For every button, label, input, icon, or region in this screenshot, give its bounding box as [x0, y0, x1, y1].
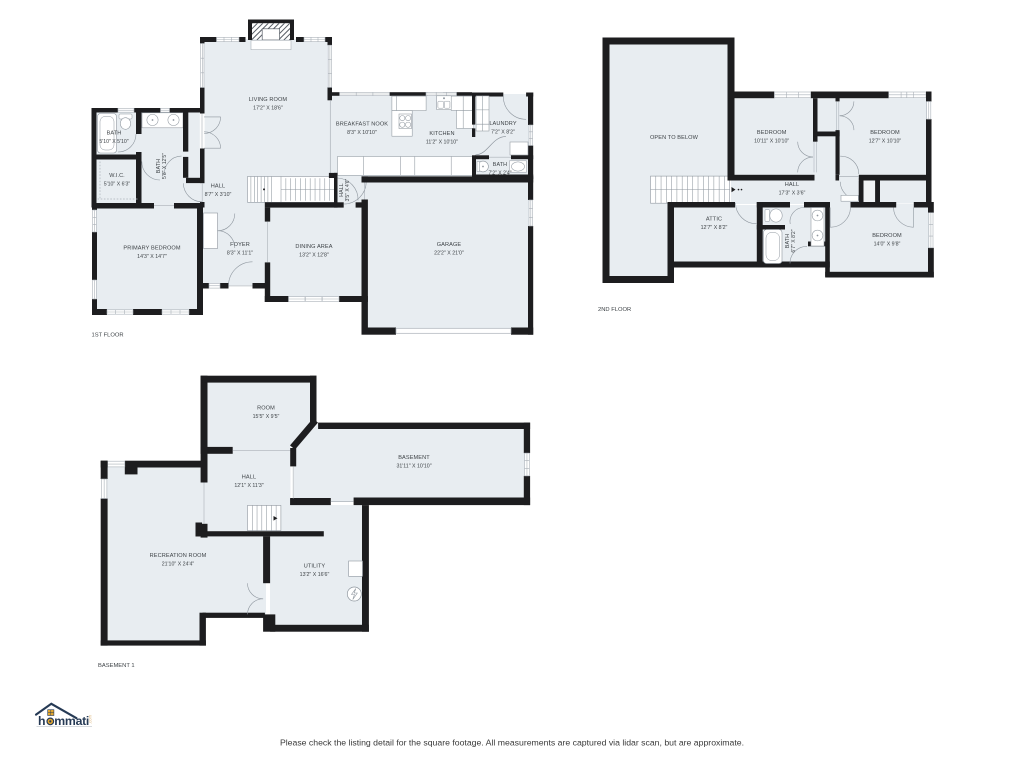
svg-text:14'3" X 14'7": 14'3" X 14'7"	[137, 254, 167, 260]
svg-text:.com: .com	[88, 714, 93, 724]
svg-text:ROOM: ROOM	[257, 406, 275, 412]
svg-text:2ND FLOOR: 2ND FLOOR	[598, 307, 631, 313]
svg-text:mmati: mmati	[54, 714, 89, 728]
svg-text:BEDROOM: BEDROOM	[757, 130, 787, 136]
svg-text:7'2" X 8'2": 7'2" X 8'2"	[491, 129, 515, 135]
svg-text:BATH: BATH	[493, 162, 507, 168]
svg-text:17'3" X 3'6": 17'3" X 3'6"	[779, 190, 806, 196]
svg-text:5'10" X 6'3": 5'10" X 6'3"	[104, 181, 131, 187]
svg-text:10'11" X 10'10": 10'11" X 10'10"	[754, 138, 789, 144]
svg-text:LIVING ROOM: LIVING ROOM	[249, 97, 288, 103]
svg-text:7'2" X 2'4": 7'2" X 2'4"	[488, 170, 511, 176]
svg-text:15'5" X 9'5": 15'5" X 9'5"	[253, 414, 280, 420]
svg-text:HALL: HALL	[339, 183, 345, 196]
svg-text:UTILITY: UTILITY	[304, 564, 326, 570]
svg-text:BATH: BATH	[785, 234, 791, 248]
svg-text:Please check the listing detai: Please check the listing detail for the …	[280, 738, 744, 748]
svg-text:22'2" X 21'0": 22'2" X 21'0"	[434, 250, 464, 256]
svg-text:1ST FLOOR: 1ST FLOOR	[92, 333, 124, 339]
svg-text:3'5" X 4'6": 3'5" X 4'6"	[345, 178, 351, 201]
svg-text:13'2" X 12'8": 13'2" X 12'8"	[299, 252, 329, 258]
svg-text:BEDROOM: BEDROOM	[872, 233, 902, 239]
svg-text:5'8" X 12'5": 5'8" X 12'5"	[162, 153, 168, 179]
svg-text:HALL: HALL	[242, 475, 256, 481]
svg-text:13'2" X 16'6": 13'2" X 16'6"	[300, 572, 330, 578]
svg-text:HALL: HALL	[211, 184, 225, 190]
svg-text:GARAGE: GARAGE	[437, 242, 462, 248]
svg-text:17'2" X 18'6": 17'2" X 18'6"	[253, 105, 283, 111]
svg-text:BREAKFAST NOOK: BREAKFAST NOOK	[336, 122, 388, 128]
svg-text:12'7" X 8'2": 12'7" X 8'2"	[701, 225, 728, 231]
svg-text:RECREATION ROOM: RECREATION ROOM	[150, 553, 207, 559]
svg-text:BASEMENT 1: BASEMENT 1	[98, 663, 135, 669]
svg-text:11'2" X 10'10": 11'2" X 10'10"	[426, 139, 458, 145]
svg-text:LAUNDRY: LAUNDRY	[489, 121, 516, 127]
svg-text:5'10" X 5'10": 5'10" X 5'10"	[99, 139, 128, 145]
svg-text:6'7" X 8'2": 6'7" X 8'2"	[791, 229, 797, 252]
svg-text:14'0" X 9'8": 14'0" X 9'8"	[874, 241, 901, 247]
svg-text:8'3" X 10'10": 8'3" X 10'10"	[347, 130, 377, 136]
svg-text:12'1" X 11'3": 12'1" X 11'3"	[234, 483, 263, 489]
svg-text:FOYER: FOYER	[230, 242, 250, 248]
svg-text:21'10" X 24'4": 21'10" X 24'4"	[162, 561, 195, 567]
svg-text:12'7" X 10'10": 12'7" X 10'10"	[869, 138, 902, 144]
svg-text:BATH: BATH	[107, 131, 122, 137]
svg-text:31'11" X 10'10": 31'11" X 10'10"	[396, 463, 431, 469]
svg-text:BEDROOM: BEDROOM	[870, 130, 900, 136]
svg-text:DINING AREA: DINING AREA	[295, 244, 332, 250]
svg-text:8'7" X 3'10": 8'7" X 3'10"	[205, 192, 232, 198]
svg-text:BASEMENT: BASEMENT	[398, 455, 430, 461]
svg-text:8'3" X 11'1": 8'3" X 11'1"	[227, 250, 253, 256]
svg-text:HALL: HALL	[785, 182, 799, 188]
svg-text:ATTIC: ATTIC	[706, 217, 722, 223]
svg-text:h: h	[38, 714, 45, 728]
svg-text:OPEN TO BELOW: OPEN TO BELOW	[650, 135, 699, 141]
svg-text:W.I.C.: W.I.C.	[109, 173, 125, 179]
svg-text:BATH: BATH	[156, 159, 162, 173]
svg-text:PRIMARY BEDROOM: PRIMARY BEDROOM	[123, 246, 180, 252]
svg-text:KITCHEN: KITCHEN	[429, 131, 454, 137]
